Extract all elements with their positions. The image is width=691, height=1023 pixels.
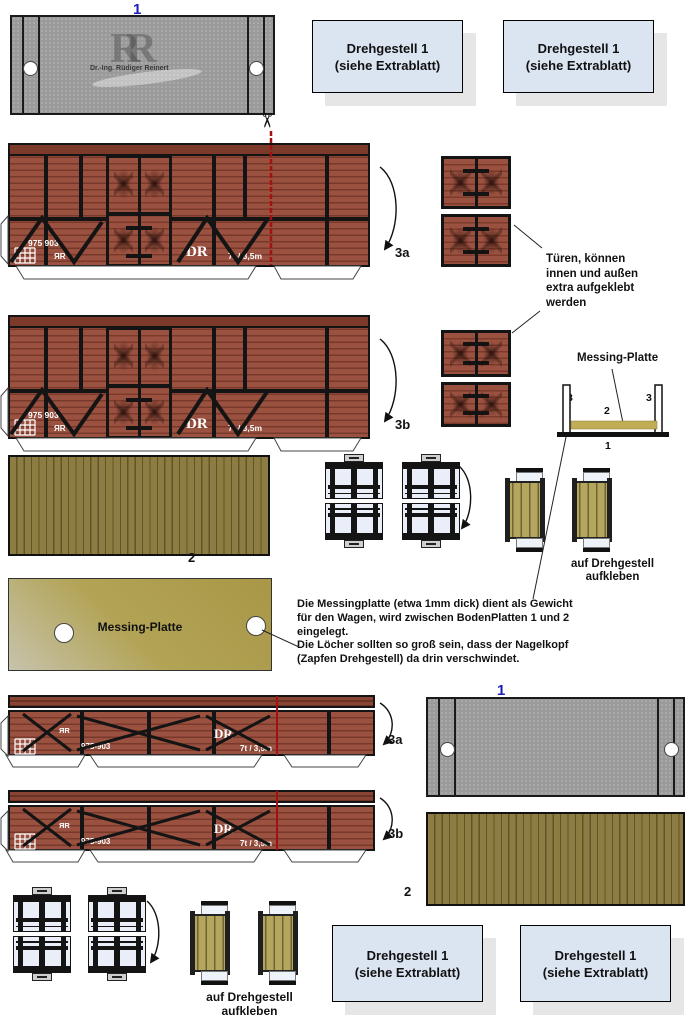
wagon-side-3b: 975 903 ЯR DR 7t / 3,5m <box>8 315 370 439</box>
papercraft-sheet: 1 RR Dr.-Ing. Rüdiger Reinert Drehgestel… <box>0 0 691 1023</box>
wagon-post <box>212 327 216 389</box>
door-x-brace <box>481 388 501 421</box>
part2-label-left: 2 <box>188 550 195 565</box>
wagon-number: 975 903 <box>28 411 59 420</box>
wagon-roof-band <box>10 145 368 156</box>
channel-diagram <box>557 385 669 437</box>
wagon-midrail <box>10 217 368 221</box>
door-x-brace <box>481 336 501 370</box>
dr-logo: DR <box>186 417 208 432</box>
wagon-post <box>79 327 83 389</box>
bogie-frame-part <box>325 462 383 540</box>
strip-3a-roof <box>8 695 375 708</box>
brass-plate: Messing-Platte <box>8 578 272 671</box>
wagon-post <box>79 155 83 217</box>
nail-hole <box>54 623 74 643</box>
floor-plate-1-top: RR Dr.-Ing. Rüdiger Reinert <box>10 15 275 115</box>
drehgestell-placeholder-2: Drehgestell 1 (siehe Extrablatt) <box>503 20 654 93</box>
door-center-bar <box>475 333 478 374</box>
part3a-label-strip: 3a <box>388 732 402 747</box>
part3a-label-top: 3a <box>395 245 409 260</box>
part3b-label-strip: 3b <box>388 826 403 841</box>
floor-plate-1-right <box>426 697 685 797</box>
bogie-tab <box>107 973 127 981</box>
bottom-plate-bar <box>557 432 669 437</box>
drehgestell-title: Drehgestell 1 <box>555 947 637 964</box>
door-center-bar <box>475 385 478 424</box>
bogie-tab <box>344 540 364 548</box>
door-center-bar <box>138 158 141 264</box>
ladder-grid-marking <box>14 738 36 755</box>
drehgestell-placeholder-3: Drehgestell 1 (siehe Extrablatt) <box>332 925 483 1002</box>
brass-bar <box>571 421 657 429</box>
door-handle-bar <box>126 226 152 230</box>
wagon-strip-3a: ЯR 975-903 DR 7t / 3,5m <box>8 710 375 756</box>
wagon-midrail <box>10 389 368 393</box>
wagon-number: 975 903 <box>28 239 59 248</box>
load-spec: 7t / 3,5m <box>240 745 272 753</box>
dr-logo: DR <box>186 245 208 260</box>
auf-drehgestell-note-mid: auf Drehgestell aufkleben <box>555 558 670 583</box>
wagon-number: 975-903 <box>81 838 110 846</box>
tueren-note: Türen, können innen und außen extra aufg… <box>546 252 638 310</box>
drehgestell-title: Drehgestell 1 <box>367 947 449 964</box>
door-x-brace <box>481 163 501 203</box>
plate-fold-line <box>38 17 40 113</box>
drehgestell-subtitle: (siehe Extrablatt) <box>335 57 440 74</box>
wood-bolster-part <box>572 468 612 552</box>
wagon-number: 975-903 <box>81 743 110 751</box>
diagram-num-1: 1 <box>605 440 611 452</box>
scissors-icon: ✂ <box>254 112 279 129</box>
messing-diagram-label: Messing-Platte <box>577 352 658 364</box>
bogie-tab <box>32 887 52 895</box>
wagon-post <box>327 712 331 754</box>
load-spec: 7t / 3,5m <box>240 840 272 848</box>
door-x-brace <box>114 334 133 378</box>
drehgestell-placeholder-1: Drehgestell 1 (siehe Extrablatt) <box>312 20 463 93</box>
auf-drehgestell-note-bottom: auf Drehgestell aufkleben <box>192 991 307 1018</box>
drehgestell-title: Drehgestell 1 <box>538 40 620 57</box>
bogie-tab <box>421 540 441 548</box>
wagon-post <box>243 155 247 217</box>
door-x-brace <box>450 221 470 261</box>
wagon-post <box>327 807 331 849</box>
wagon-post <box>325 393 329 439</box>
wagon-door-block <box>106 155 172 267</box>
door-center-bar <box>138 330 141 436</box>
door-x-brace <box>450 388 470 421</box>
pivot-hole <box>23 61 38 76</box>
bogie-tab <box>32 973 52 981</box>
floor-plank-panel-2-left <box>8 455 270 556</box>
drehgestell-placeholder-4: Drehgestell 1 (siehe Extrablatt) <box>520 925 671 1002</box>
wagon-post <box>44 327 48 389</box>
bogie-frame-part <box>402 462 460 540</box>
wagon-post <box>212 155 216 217</box>
door-pair <box>441 382 511 427</box>
nail-hole <box>246 616 266 636</box>
owner-mark-small: ЯR <box>59 727 70 735</box>
wagon-side-3a: 975 903 ЯR DR 7t / 3,5m <box>8 143 370 267</box>
drehgestell-title: Drehgestell 1 <box>347 40 429 57</box>
strip-3b-roof <box>8 790 375 803</box>
wood-bolster-part <box>190 901 230 985</box>
bogie-frame-part <box>88 895 146 973</box>
wagon-roof-band <box>10 317 368 328</box>
door-divider <box>109 212 169 216</box>
wagon-strip-3b: ЯR 975-903 DR 7t / 3,5m <box>8 805 375 851</box>
door-handle-bar <box>126 426 152 430</box>
wagon-post <box>147 712 151 754</box>
door-x-brace <box>450 163 470 203</box>
door-pair <box>441 156 511 209</box>
wagon-post <box>325 327 329 389</box>
diagram-num-3-right: 3 <box>646 392 652 404</box>
door-handle-bar <box>126 398 152 402</box>
pivot-hole <box>440 742 455 757</box>
wood-bolster-part <box>258 901 298 985</box>
diagram-num-3-left: 3 <box>567 392 573 404</box>
wagon-post <box>147 807 151 849</box>
wagon-post <box>325 155 329 217</box>
owner-mark-small: ЯR <box>59 822 70 830</box>
pivot-hole <box>664 742 679 757</box>
door-divider <box>109 384 169 388</box>
drehgestell-subtitle: (siehe Extrablatt) <box>526 57 631 74</box>
ladder-grid-marking <box>14 833 36 850</box>
dr-logo: DR <box>214 727 233 740</box>
ladder-grid-marking <box>14 419 36 436</box>
owner-mark-small: ЯR <box>54 425 66 433</box>
drehgestell-subtitle: (siehe Extrablatt) <box>543 964 648 981</box>
load-spec: 7t / 3,5m <box>228 424 262 433</box>
floor-plank-panel-2-right <box>426 812 685 906</box>
wagon-post <box>212 393 216 439</box>
door-handle-bar <box>126 254 152 258</box>
door-x-brace <box>450 336 470 370</box>
ladder-grid-marking <box>14 247 36 264</box>
wagon-post <box>243 327 247 389</box>
wagon-post <box>212 221 216 267</box>
wagon-post <box>44 155 48 217</box>
watermark-name: Dr.-Ing. Rüdiger Reinert <box>90 65 169 72</box>
door-x-brace <box>145 162 164 206</box>
wood-bolster-part <box>505 468 545 552</box>
part3b-label-top: 3b <box>395 417 410 432</box>
bogie-tab <box>421 454 441 462</box>
door-center-bar <box>475 159 478 206</box>
owner-mark-small: ЯR <box>54 253 66 261</box>
wagon-post <box>325 221 329 267</box>
diagram-num-2: 2 <box>604 405 610 417</box>
part2-label-right: 2 <box>404 884 411 899</box>
door-x-brace <box>114 162 133 206</box>
drehgestell-subtitle: (siehe Extrablatt) <box>355 964 460 981</box>
bogie-tab <box>107 887 127 895</box>
load-spec: 7t / 3,5m <box>228 252 262 261</box>
pivot-hole <box>249 61 264 76</box>
messing-instruction: Die Messingplatte (etwa 1mm dick) dient … <box>297 598 573 667</box>
dr-logo: DR <box>214 822 233 835</box>
wagon-door-block <box>106 327 172 439</box>
door-x-brace <box>481 221 501 261</box>
door-pair <box>441 330 511 377</box>
door-center-bar <box>475 217 478 264</box>
bogie-frame-part <box>13 895 71 973</box>
door-x-brace <box>145 334 164 378</box>
door-pair <box>441 214 511 267</box>
brass-plate-label: Messing-Platte <box>9 620 271 634</box>
plate-fold-line <box>657 699 659 795</box>
bogie-tab <box>344 454 364 462</box>
